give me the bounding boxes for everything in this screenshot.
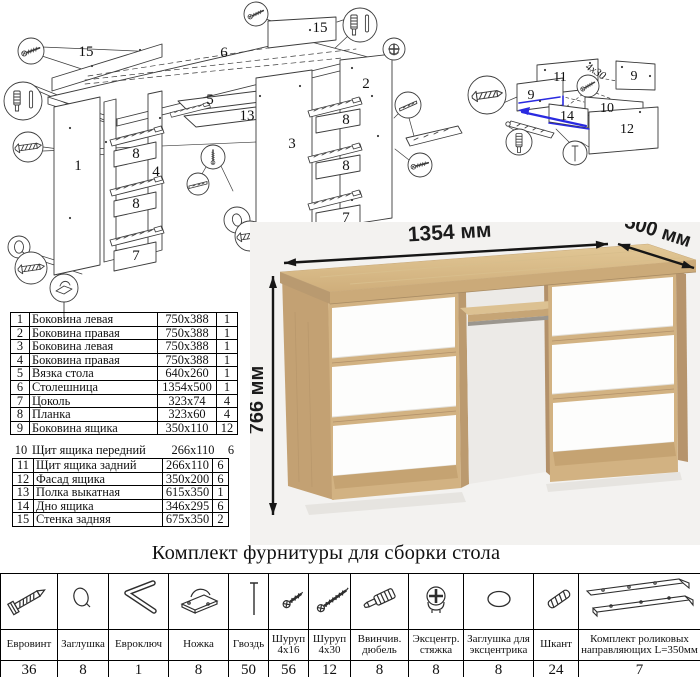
screw-4x16-icon bbox=[269, 574, 309, 624]
part-qty: 6 bbox=[222, 444, 240, 457]
hardware-name: Комплект роликовых направляющих L=350мм bbox=[579, 630, 700, 661]
part-label: 1 bbox=[74, 158, 82, 174]
hardware-name: Гвоздь bbox=[229, 630, 269, 661]
nail-icon bbox=[229, 574, 269, 624]
part-label: 14 bbox=[560, 109, 574, 124]
table-row: 15Стенка задняя675x3502 bbox=[13, 513, 229, 527]
part-size: 323x74 bbox=[158, 394, 217, 408]
part-label: 8 bbox=[132, 196, 140, 212]
part-label: 10 bbox=[600, 101, 614, 116]
hardware-name: Заглушка bbox=[58, 630, 109, 661]
hex-key-icon bbox=[114, 574, 164, 624]
table-row: 6Столешница1354x5001 bbox=[11, 380, 238, 394]
part-size: 750x388 bbox=[158, 340, 217, 354]
hardware-table: Евровинт Заглушка Евроключ Ножка Гвоздь … bbox=[0, 573, 700, 677]
dowel-icon bbox=[534, 574, 579, 624]
part-num: 13 bbox=[13, 486, 34, 500]
part-qty: 1 bbox=[217, 380, 238, 394]
hardware-qty-row: 36 8 1 8 50 56 12 8 8 8 24 7 bbox=[1, 661, 700, 677]
part-num: 14 bbox=[13, 499, 34, 513]
part-num: 6 bbox=[11, 380, 30, 394]
part-size: 346x295 bbox=[163, 499, 213, 513]
hardware-name: Шкант bbox=[534, 630, 579, 661]
table-row: 11Щит ящика задний266x1106 bbox=[13, 459, 229, 473]
part-label: 9 bbox=[528, 88, 535, 103]
hardware-name: Ввинчив. дюбель bbox=[351, 630, 409, 661]
part-label: 15 bbox=[313, 20, 328, 36]
part-qty: 6 bbox=[213, 472, 229, 486]
part-qty: 1 bbox=[217, 326, 238, 340]
part-num: 5 bbox=[11, 367, 30, 381]
hardware-name: Евроключ bbox=[109, 630, 169, 661]
part-size: 640x260 bbox=[158, 367, 217, 381]
part-size: 350x110 bbox=[158, 421, 217, 435]
part-label: 2 bbox=[362, 76, 370, 92]
part-label: 12 bbox=[620, 122, 634, 137]
part-name: Боковина ящика bbox=[30, 421, 158, 435]
hardware-qty: 8 bbox=[351, 661, 409, 677]
table-row: 5Вязка стола640x2601 bbox=[11, 367, 238, 381]
hardware-name: Эксцентр. стяжка bbox=[409, 630, 464, 661]
part-name: Стенка задняя bbox=[34, 513, 163, 527]
hardware-name: Шуруп 4x30 bbox=[309, 630, 351, 661]
hardware-name: Евровинт bbox=[1, 630, 58, 661]
table-row: 13Полка выкатная615x3501 bbox=[13, 486, 229, 500]
desk-render bbox=[280, 244, 696, 500]
cap-icon bbox=[58, 574, 108, 624]
part-num: 8 bbox=[11, 408, 30, 422]
part-name: Фасад ящика bbox=[34, 472, 163, 486]
parts-table-lower: 11Щит ящика задний266x1106 12Фасад ящика… bbox=[12, 458, 229, 527]
part-label: 8 bbox=[132, 146, 140, 162]
part-num: 4 bbox=[11, 353, 30, 367]
hardware-name: Ножка bbox=[169, 630, 229, 661]
part-size: 1354x500 bbox=[158, 380, 217, 394]
part-num: 3 bbox=[11, 340, 30, 354]
hardware-qty: 8 bbox=[58, 661, 109, 677]
part-qty: 2 bbox=[213, 513, 229, 527]
part-qty: 4 bbox=[217, 394, 238, 408]
part-label: 3 bbox=[288, 136, 296, 152]
hardware-name: Заглушка для эксцентрика bbox=[464, 630, 534, 661]
part-name: Щит ящика задний bbox=[34, 459, 163, 473]
part-num: 11 bbox=[13, 459, 34, 473]
part-size: 266x110 bbox=[164, 444, 222, 457]
part-label: 7 bbox=[132, 248, 140, 264]
part-qty: 1 bbox=[217, 353, 238, 367]
foot-icon bbox=[174, 574, 224, 624]
part-name: Боковина правая bbox=[30, 326, 158, 340]
table-row: 12Фасад ящика350x2006 bbox=[13, 472, 229, 486]
part-size: 615x350 bbox=[163, 486, 213, 500]
hardware-qty: 7 bbox=[579, 661, 700, 677]
part-qty: 6 bbox=[213, 499, 229, 513]
part-label: 11 bbox=[553, 70, 566, 85]
hardware-icons-row bbox=[1, 574, 700, 630]
part-name: Планка bbox=[30, 408, 158, 422]
part-label: 9 bbox=[631, 69, 638, 84]
desk-photo: 1354 мм 500 мм 766 мм bbox=[250, 222, 700, 545]
part-size: 675x350 bbox=[163, 513, 213, 527]
part-num: 12 bbox=[13, 472, 34, 486]
part-qty: 4 bbox=[217, 408, 238, 422]
table-row: 14Дно ящика346x2956 bbox=[13, 499, 229, 513]
hardware-qty: 50 bbox=[229, 661, 269, 677]
table-row: 3Боковина левая750x3881 bbox=[11, 340, 238, 354]
hardware-names-row: Евровинт Заглушка Евроключ Ножка Гвоздь … bbox=[1, 630, 700, 661]
part-num: 15 bbox=[13, 513, 34, 527]
hardware-qty: 1 bbox=[109, 661, 169, 677]
part-size: 323x60 bbox=[158, 408, 217, 422]
part-name: Цоколь bbox=[30, 394, 158, 408]
table-row: 1Боковина левая750x3881 bbox=[11, 313, 238, 327]
cam-lock-icon bbox=[411, 574, 461, 624]
hardware-kit-title: Комплект фурнитуры для сборки стола bbox=[0, 542, 652, 565]
hardware-qty: 24 bbox=[534, 661, 579, 677]
part-size: 750x388 bbox=[158, 313, 217, 327]
cam-cap-icon bbox=[474, 574, 524, 624]
part-name: Полка выкатная bbox=[34, 486, 163, 500]
part-label: 8 bbox=[342, 158, 350, 174]
part-num: 1 bbox=[11, 313, 30, 327]
parts-table-upper: 1Боковина левая750x3881 2Боковина правая… bbox=[10, 312, 238, 435]
part-qty: 1 bbox=[213, 486, 229, 500]
hardware-qty: 8 bbox=[169, 661, 229, 677]
part-name: Боковина левая bbox=[30, 313, 158, 327]
hardware-qty: 8 bbox=[464, 661, 534, 677]
part-qty: 1 bbox=[217, 367, 238, 381]
part-name: Боковина правая bbox=[30, 353, 158, 367]
part-size: 750x388 bbox=[158, 326, 217, 340]
euro-screw-icon bbox=[4, 574, 54, 624]
table-row: 9Боковина ящика350x11012 bbox=[11, 421, 238, 435]
hardware-qty: 12 bbox=[309, 661, 351, 677]
part-num: 7 bbox=[11, 394, 30, 408]
hardware-qty: 8 bbox=[409, 661, 464, 677]
screw-dowel-icon bbox=[355, 574, 405, 624]
table-row: 7Цоколь323x744 bbox=[11, 394, 238, 408]
part-name: Вязка стола bbox=[30, 367, 158, 381]
part-name: Боковина левая bbox=[30, 340, 158, 354]
part-name: Дно ящика bbox=[34, 499, 163, 513]
part-label: 6 bbox=[220, 45, 228, 61]
part-name: Щит ящика передний bbox=[32, 444, 164, 457]
part-qty: 1 bbox=[217, 340, 238, 354]
table-row: 4Боковина правая750x3881 bbox=[11, 353, 238, 367]
part-qty: 12 bbox=[217, 421, 238, 435]
hardware-qty: 36 bbox=[1, 661, 58, 677]
part-size: 750x388 bbox=[158, 353, 217, 367]
table-row: 10 Щит ящика передний 266x110 6 bbox=[10, 443, 242, 458]
part-num: 10 bbox=[10, 444, 32, 457]
part-num: 9 bbox=[11, 421, 30, 435]
part-name: Столешница bbox=[30, 380, 158, 394]
part-label: 5 bbox=[206, 92, 214, 108]
part-qty: 1 bbox=[217, 313, 238, 327]
part-label: 13 bbox=[240, 108, 255, 124]
part-label: 4 bbox=[152, 164, 160, 180]
part-num: 2 bbox=[11, 326, 30, 340]
part-size: 350x200 bbox=[163, 472, 213, 486]
table-row: 8Планка323x604 bbox=[11, 408, 238, 422]
screw-4x30-icon bbox=[309, 574, 351, 624]
part-qty: 6 bbox=[213, 459, 229, 473]
height-dimension-label: 766 мм bbox=[250, 366, 268, 435]
hardware-name: Шуруп 4x16 bbox=[269, 630, 309, 661]
hardware-qty: 56 bbox=[269, 661, 309, 677]
table-row: 2Боковина правая750x3881 bbox=[11, 326, 238, 340]
assembly-instruction-sheet: 15 6 15 5 13 2 8 3 1 8 4 8 7 8 7 11 9 4x… bbox=[0, 0, 700, 677]
part-label: 8 bbox=[342, 112, 350, 128]
part-size: 266x110 bbox=[163, 459, 213, 473]
drawer-slides-icon bbox=[581, 574, 699, 624]
part-label: 15 bbox=[79, 44, 94, 60]
